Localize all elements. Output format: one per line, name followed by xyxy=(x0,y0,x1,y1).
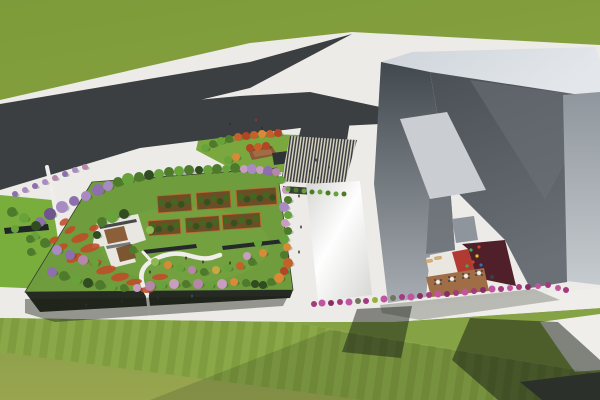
colonnade-shrub xyxy=(302,189,307,194)
tree xyxy=(195,166,203,174)
main-building xyxy=(374,47,600,303)
tree xyxy=(32,183,38,189)
shrub xyxy=(489,286,496,293)
chair xyxy=(468,273,470,275)
tree xyxy=(259,249,267,257)
tree xyxy=(201,144,209,152)
tree xyxy=(274,129,282,137)
tree xyxy=(158,281,166,289)
chair xyxy=(481,270,483,272)
shrub xyxy=(399,294,405,300)
chair xyxy=(448,276,450,278)
tree xyxy=(254,239,262,247)
shrub xyxy=(480,287,486,293)
tree xyxy=(174,166,184,176)
tree xyxy=(193,279,203,289)
dark-table xyxy=(490,275,494,279)
tree xyxy=(47,267,57,277)
tree xyxy=(234,133,242,141)
tree xyxy=(120,284,128,292)
shrub xyxy=(408,294,415,301)
chair xyxy=(434,279,436,281)
playground-equipment xyxy=(465,264,468,267)
tree xyxy=(71,275,81,285)
tree xyxy=(224,264,232,272)
tree xyxy=(242,132,250,140)
tree xyxy=(146,226,154,234)
tree xyxy=(12,191,18,197)
person xyxy=(85,304,86,307)
tree xyxy=(263,166,273,176)
tree xyxy=(62,171,68,177)
tree xyxy=(222,165,230,173)
tree xyxy=(97,217,107,227)
person xyxy=(298,251,299,254)
tree xyxy=(31,221,41,231)
playground-equipment xyxy=(477,245,480,248)
tree xyxy=(272,168,280,176)
tree xyxy=(206,281,214,289)
playground-equipment xyxy=(479,263,482,266)
tree xyxy=(184,165,194,175)
shrub xyxy=(507,285,513,291)
person xyxy=(255,119,256,122)
orchard-bed xyxy=(157,194,192,213)
shrub xyxy=(525,284,531,290)
tree xyxy=(26,235,34,243)
shrub xyxy=(390,295,396,301)
shrub xyxy=(516,284,522,290)
tree xyxy=(246,144,254,152)
person xyxy=(202,261,203,264)
skylight-small xyxy=(452,216,478,243)
chair xyxy=(462,273,464,275)
shrub xyxy=(346,299,353,306)
person xyxy=(149,271,150,274)
tree xyxy=(122,173,134,185)
tree xyxy=(72,167,78,173)
tree xyxy=(56,201,68,213)
tree xyxy=(277,176,285,184)
tree xyxy=(283,243,291,251)
chair xyxy=(454,280,456,282)
tree xyxy=(284,227,292,235)
chair xyxy=(440,283,442,285)
tree xyxy=(225,135,233,143)
tree xyxy=(256,166,264,174)
architectural-render: Aerial 3D architectural rendering: rooft… xyxy=(0,0,600,400)
table-top xyxy=(477,271,481,275)
tree xyxy=(236,262,244,270)
shrub xyxy=(563,287,569,293)
chair xyxy=(475,270,477,272)
colonnade-shrub xyxy=(334,192,339,197)
tree xyxy=(247,164,257,174)
tree xyxy=(242,279,250,287)
tree xyxy=(250,131,258,139)
shrub xyxy=(462,289,469,296)
tree xyxy=(284,211,292,219)
tree xyxy=(22,187,28,193)
tree xyxy=(59,271,69,281)
tree xyxy=(262,142,270,150)
tree xyxy=(240,165,248,173)
shrub xyxy=(545,282,551,288)
tree xyxy=(119,209,129,219)
shrub xyxy=(319,300,326,307)
chair xyxy=(481,274,483,276)
colonnade-shrub xyxy=(318,190,323,195)
tree xyxy=(129,246,137,254)
playground-equipment xyxy=(475,254,478,257)
chair xyxy=(468,277,470,279)
tree xyxy=(283,258,293,268)
playground-equipment xyxy=(471,260,474,263)
tree xyxy=(81,191,91,201)
shrub xyxy=(311,301,317,307)
tree xyxy=(144,170,154,180)
tree xyxy=(93,231,101,239)
tree xyxy=(151,258,159,266)
shrub xyxy=(417,293,423,299)
tree xyxy=(279,234,289,244)
person xyxy=(229,123,230,126)
person xyxy=(300,226,301,229)
tree xyxy=(212,266,220,274)
playground-equipment xyxy=(469,248,472,251)
tree xyxy=(108,283,116,291)
tree xyxy=(212,164,222,174)
chair xyxy=(448,280,450,282)
chair xyxy=(440,279,442,281)
tree xyxy=(134,172,144,182)
tree xyxy=(266,130,274,138)
table-top xyxy=(450,277,454,281)
table-top xyxy=(464,274,468,278)
tree xyxy=(82,164,88,170)
tree xyxy=(164,167,174,177)
person xyxy=(315,159,316,162)
tree xyxy=(232,153,240,161)
tree xyxy=(113,177,123,187)
tree xyxy=(258,130,266,138)
tree xyxy=(200,268,208,276)
tree xyxy=(254,143,262,151)
building-right-facade xyxy=(563,92,600,285)
orchard-bed xyxy=(222,212,261,230)
tree xyxy=(27,248,35,256)
tree xyxy=(182,280,190,288)
tree xyxy=(83,278,93,288)
chair xyxy=(475,274,477,276)
colonnade-shrub xyxy=(286,187,291,192)
shrub xyxy=(328,300,334,306)
shrub xyxy=(426,292,432,298)
tree xyxy=(52,245,62,255)
shrub xyxy=(337,299,343,305)
colonnade-shrub xyxy=(310,190,315,195)
tree xyxy=(217,279,227,289)
tree xyxy=(106,211,118,223)
person xyxy=(185,257,186,260)
tree xyxy=(230,163,240,173)
tree xyxy=(133,284,141,292)
shrub xyxy=(535,283,541,289)
chair xyxy=(434,283,436,285)
person xyxy=(261,127,262,130)
table-top xyxy=(436,280,440,284)
tree xyxy=(11,225,19,233)
tree xyxy=(95,280,105,290)
tree xyxy=(203,165,213,175)
shrub xyxy=(444,291,450,297)
person xyxy=(317,177,318,180)
shrub xyxy=(372,297,378,303)
tree xyxy=(69,196,79,206)
orchard-bed xyxy=(185,216,220,233)
tree xyxy=(44,208,56,220)
shrub xyxy=(453,290,459,296)
tree xyxy=(279,202,289,212)
striped-entry-plaza xyxy=(281,136,357,186)
tree xyxy=(154,169,164,179)
site-render-svg: Aerial 3D architectural rendering: rooft… xyxy=(0,0,600,400)
person xyxy=(229,262,230,265)
tree xyxy=(91,259,99,267)
shrub xyxy=(435,291,442,298)
shrub xyxy=(498,286,504,292)
colonnade-shrub xyxy=(294,188,299,193)
person xyxy=(328,166,329,169)
tree xyxy=(78,255,88,265)
tree xyxy=(164,261,172,269)
shrub xyxy=(355,298,361,304)
tree xyxy=(7,207,17,217)
person xyxy=(298,195,299,198)
orchard-bed xyxy=(236,187,277,207)
tree xyxy=(176,264,184,272)
shrub xyxy=(363,298,369,304)
tree xyxy=(274,273,284,283)
person xyxy=(309,170,310,173)
tree xyxy=(188,266,196,274)
person xyxy=(191,295,192,298)
tree xyxy=(65,250,75,260)
person xyxy=(121,300,122,303)
tree xyxy=(230,278,238,286)
chair xyxy=(462,277,464,279)
person xyxy=(157,297,158,300)
shrub xyxy=(381,296,388,303)
shrub xyxy=(555,285,561,291)
orchard-bed xyxy=(196,191,231,210)
tree xyxy=(42,179,48,185)
tree xyxy=(251,280,259,288)
colonnade-shrub xyxy=(342,192,347,197)
tree xyxy=(280,251,288,259)
tree xyxy=(169,279,179,289)
tree xyxy=(145,281,155,291)
tree xyxy=(19,213,29,223)
chair xyxy=(454,276,456,278)
colonnade-shrub xyxy=(326,191,331,196)
tree xyxy=(52,175,58,181)
tree xyxy=(217,137,225,145)
tree xyxy=(267,278,275,286)
shrub xyxy=(471,288,477,294)
tree xyxy=(281,219,289,227)
tree xyxy=(209,140,217,148)
tree xyxy=(92,184,104,196)
tree xyxy=(243,252,251,260)
tree xyxy=(40,238,50,248)
tree xyxy=(224,156,232,164)
tree xyxy=(103,181,113,191)
